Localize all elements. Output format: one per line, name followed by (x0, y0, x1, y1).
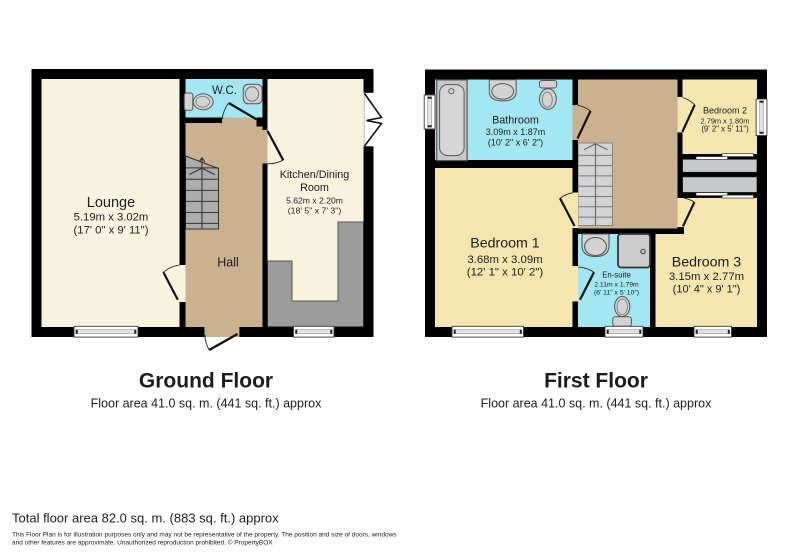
svg-text:Kitchen/Dining: Kitchen/Dining (280, 169, 350, 181)
svg-text:First Floor: First Floor (544, 370, 648, 393)
svg-text:Room: Room (300, 182, 329, 194)
svg-text:Bedroom 1: Bedroom 1 (470, 236, 540, 252)
svg-text:5.62m x 2.20m: 5.62m x 2.20m (286, 196, 343, 206)
svg-text:Total floor area 82.0 sq. m. (: Total floor area 82.0 sq. m. (883 sq. ft… (12, 511, 279, 526)
svg-text:(10' 4" x 9' 1"): (10' 4" x 9' 1") (673, 284, 741, 296)
svg-text:2.11m x 1.79m: 2.11m x 1.79m (594, 282, 639, 289)
svg-text:3.09m x 1.87m: 3.09m x 1.87m (486, 127, 546, 137)
svg-text:(17' 0" x 9' 11"): (17' 0" x 9' 11") (74, 225, 149, 237)
svg-text:En-suite: En-suite (602, 271, 631, 280)
svg-text:(6' 11" x 5' 10"): (6' 11" x 5' 10") (594, 290, 639, 297)
svg-text:Hall: Hall (217, 256, 239, 270)
svg-text:Bathroom: Bathroom (492, 115, 539, 127)
svg-text:(18' 5" x 7' 3"): (18' 5" x 7' 3") (288, 206, 342, 216)
svg-text:Bedroom 2: Bedroom 2 (703, 106, 747, 116)
svg-text:Floor area 41.0 sq. m. (441 sq: Floor area 41.0 sq. m. (441 sq. ft.) app… (91, 397, 322, 411)
svg-text:Lounge: Lounge (87, 195, 135, 211)
svg-text:and other features are approxi: and other features are approximate. Unau… (12, 539, 273, 547)
svg-text:This Floor Plan is for illustr: This Floor Plan is for illustration purp… (12, 531, 397, 538)
svg-text:W.C.: W.C. (212, 85, 237, 97)
svg-text:(10' 2" x 6' 2"): (10' 2" x 6' 2") (488, 138, 543, 148)
svg-text:5.19m x 3.02m: 5.19m x 3.02m (74, 212, 149, 224)
svg-text:Floor area 41.0 sq. m. (441 sq: Floor area 41.0 sq. m. (441 sq. ft.) app… (481, 397, 712, 411)
svg-text:(12' 1" x 10' 2"): (12' 1" x 10' 2") (467, 267, 544, 279)
svg-text:(9' 2" x 5' 11"): (9' 2" x 5' 11") (701, 125, 749, 134)
svg-text:Ground Floor: Ground Floor (139, 370, 273, 393)
svg-text:3.68m x 3.09m: 3.68m x 3.09m (467, 254, 542, 266)
svg-text:Bedroom 3: Bedroom 3 (672, 255, 742, 271)
svg-text:3.15m x 2.77m: 3.15m x 2.77m (669, 271, 744, 283)
